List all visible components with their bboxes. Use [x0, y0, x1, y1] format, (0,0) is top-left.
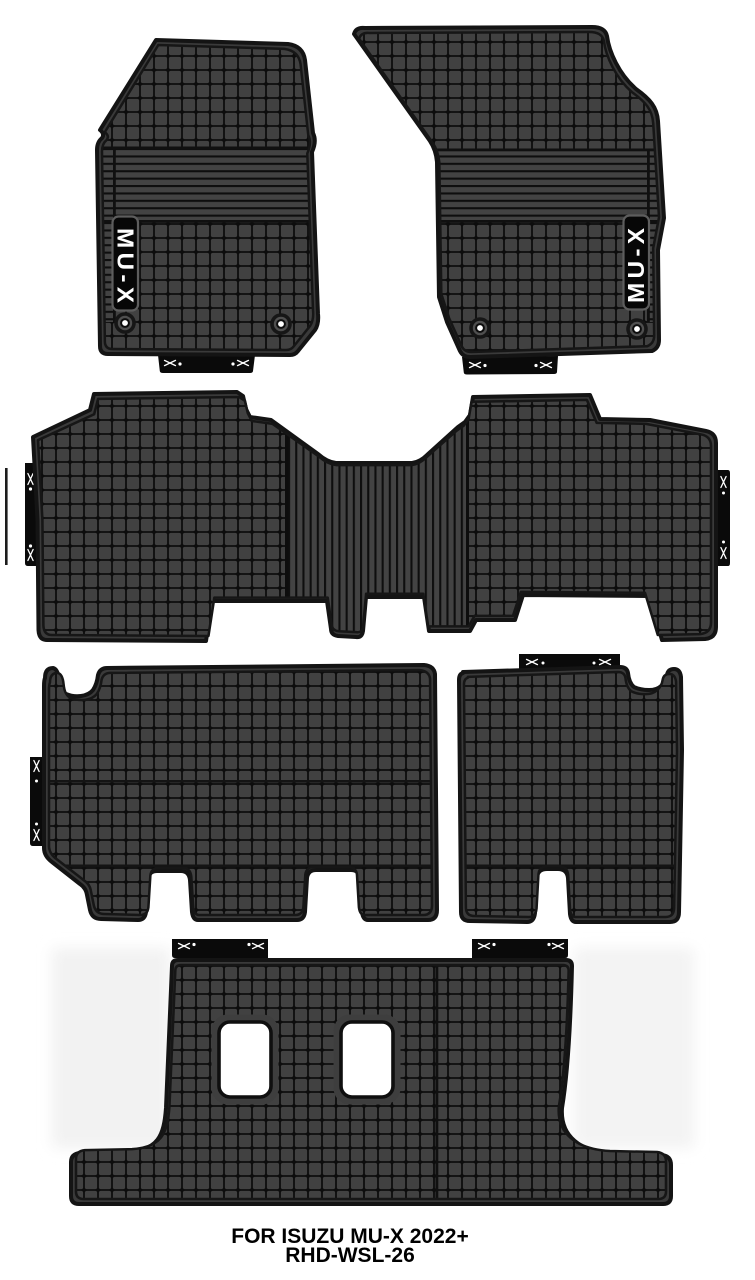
svg-text:MU-X: MU-X	[625, 224, 650, 303]
svg-text:RHD-WSL-26: RHD-WSL-26	[285, 1244, 415, 1267]
svg-text:MU-X: MU-X	[112, 228, 137, 307]
